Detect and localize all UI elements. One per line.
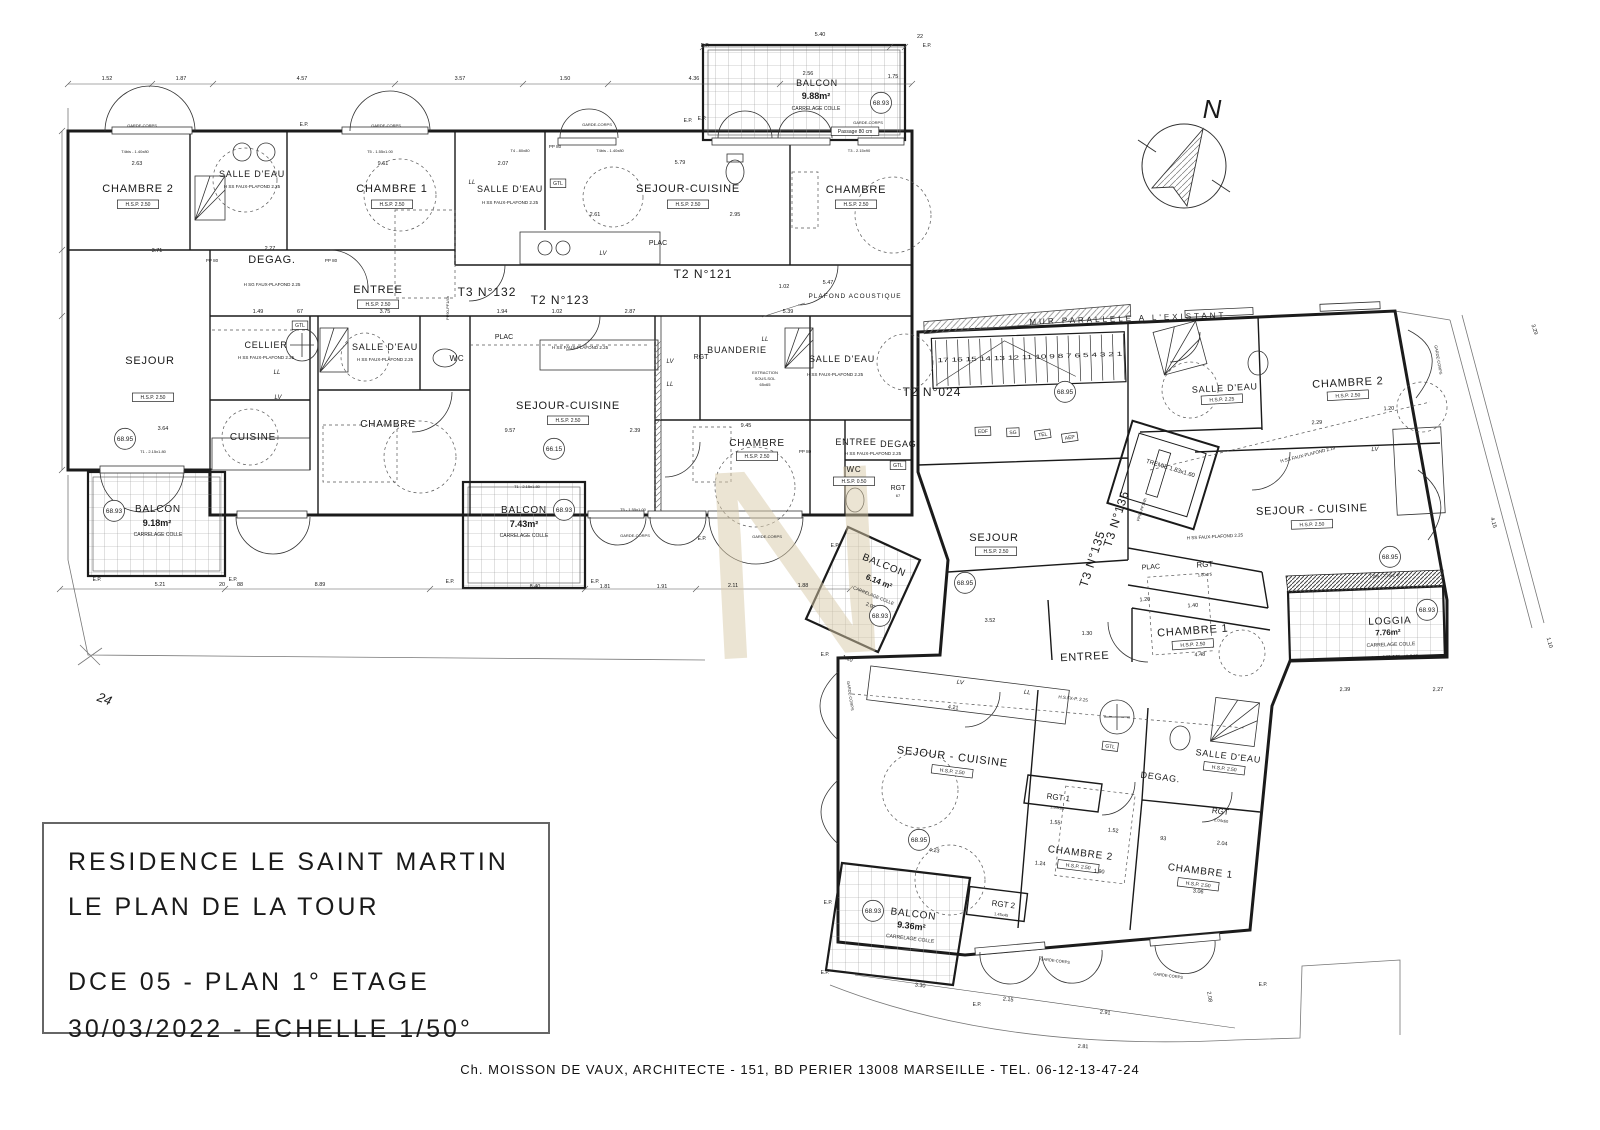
dimension-label: 1.40 — [1187, 603, 1198, 610]
dimension-label: 1.20 — [1139, 597, 1150, 604]
annotation-label: RGT — [891, 485, 907, 492]
annotation-label: LL — [274, 370, 281, 376]
level-marker: 68.95 — [115, 428, 136, 449]
room-label: SEJOUR — [125, 355, 174, 367]
annotation-label: PP 80 — [799, 449, 812, 454]
annotation-label-text: GARDE-CORPS — [853, 120, 883, 125]
boxed-label: H.S.P. 2.50 — [371, 200, 412, 209]
annotation-label: LV — [274, 395, 282, 401]
dimension-label: 3.29 — [1529, 324, 1538, 336]
annotation-label-text: T1 - 2.15x1.80 — [140, 449, 167, 454]
dimension-label: 3.52 — [985, 618, 996, 624]
room-label-text: SEJOUR — [969, 532, 1018, 544]
level-marker: 68.93 — [104, 500, 125, 521]
apartment-label: T2 N°024 — [903, 385, 962, 399]
dimension-label: 67 — [297, 309, 303, 315]
annotation-label-text: GARDE-CORPS — [620, 533, 650, 538]
room-label-text: CHAMBRE — [826, 184, 887, 196]
dimension-label-text: 1.30 — [1082, 631, 1093, 637]
room-label: SEJOUR-CUISINE — [516, 400, 620, 412]
annotation-label: EXTRACTION — [752, 370, 778, 375]
dimension-label-text: 67 — [297, 309, 303, 315]
annotation-label: E.P. — [821, 652, 830, 658]
dimension-label-text: 22 — [917, 34, 923, 40]
annotation-label-text: E.P. — [831, 543, 840, 549]
annotation-label-text: LL — [667, 382, 674, 388]
boxed-label: H.S.P. 2.50 — [1327, 390, 1369, 401]
room-label: BALCON — [796, 78, 838, 88]
room-label-text: ENTREE — [353, 284, 402, 296]
north-compass: N — [1138, 94, 1230, 208]
boxed-label: H.S.P. 2.50 — [667, 200, 708, 209]
annotation-label-text: GARDE-CORPS — [127, 123, 157, 128]
dimension-label: 9.45 — [741, 423, 752, 429]
room-label: CHAMBRE 2 — [102, 183, 173, 195]
level-marker: 68.93 — [871, 92, 892, 113]
north-label: N — [1203, 94, 1222, 124]
dimension-label-text: 3.57 — [455, 76, 466, 82]
boxed-label: H.S.P. 2.50 — [736, 452, 777, 461]
dimension-label: 2.87 — [625, 309, 636, 315]
annotation-label: E.P. — [684, 118, 693, 124]
level-marker-text: 68.95 — [957, 580, 974, 587]
dimension-label: 2.91 — [1099, 1009, 1110, 1016]
apartment-label: T2 N°123 — [531, 293, 590, 307]
room-label: CHAMBRE — [360, 419, 416, 430]
boxed-label: TEL — [1034, 429, 1051, 440]
apartment-label: T2 N°121 — [674, 267, 733, 281]
annotation-label-text: GARDE-CORPS — [752, 534, 782, 539]
annotation-label-text: PP 80 — [549, 144, 562, 149]
boxed-label: GTL — [292, 321, 308, 330]
dimension-label-text: 2.15 — [1002, 996, 1013, 1003]
annotation-label: 7.43m² — [510, 519, 539, 529]
boxed-label: GTL — [1102, 741, 1119, 751]
dimension-label: 3.71 — [152, 248, 163, 254]
boxed-label: H.S.P. 2.50 — [547, 416, 588, 425]
dimension-label-text: 2.81 — [1078, 1044, 1089, 1051]
annotation-label: H SS FAUX-PLAFOND 2.25 — [357, 357, 414, 362]
dimension-label-text: 1.50 — [560, 76, 571, 82]
room-label: CUISINE — [230, 432, 276, 443]
annotation-label: 9.88m² — [802, 91, 831, 101]
boxed-label-text: GTL — [553, 181, 563, 187]
room-label: WC — [847, 465, 862, 474]
annotation-label-text: CARRELAGE COLLE — [134, 532, 183, 538]
dimension-label-text: 3.30 — [914, 982, 925, 989]
dimension-label: 8.40 — [530, 584, 541, 590]
boxed-label-text: H.S.P. 2.50 — [141, 395, 166, 401]
dimension-label-text: 4.36 — [689, 76, 700, 82]
annotation-label-text: PP 80 — [206, 258, 219, 263]
dimension-label-text: 1.20 — [1139, 597, 1150, 604]
dimension-label: 5.79 — [675, 160, 686, 166]
apartment-label-text: T3 N°132 — [458, 285, 517, 299]
annotation-label-text: RGT — [1196, 559, 1214, 569]
annotation-label-text: H SS FAUX-PLAFOND 2.25 — [552, 345, 609, 350]
apartment-label-text: T2 N°121 — [674, 267, 733, 281]
level-marker-text: 68.93 — [872, 613, 889, 620]
annotation-label-text: 9.18m² — [143, 518, 172, 528]
annotation-label: H SS FAUX-PLAFOND 2.25 — [845, 451, 902, 456]
dimension-label-text: 1.02 — [552, 309, 563, 315]
dimension-label-text: 1.87 — [176, 76, 187, 82]
annotation-label-text: LL — [1023, 690, 1030, 697]
annotation-label-text: 7.76m² — [1375, 628, 1401, 638]
annotation-label-text: H SS FAUX-PLAFOND 2.25 — [224, 184, 281, 189]
level-marker: 68.93 — [863, 900, 884, 921]
annotation-label-text: 7.43m² — [510, 519, 539, 529]
dimension-label: 20 — [219, 582, 225, 588]
boxed-label: H.S.P. 2.50 — [117, 200, 158, 209]
room-label-text: CHAMBRE 2 — [102, 183, 173, 195]
room-label-text: SEJOUR-CUISINE — [516, 400, 620, 412]
dimension-label: 1.52 — [102, 76, 113, 82]
annotation-label-text: T4 - 80x80 — [510, 148, 530, 153]
dimension-label: 2.27 — [265, 246, 276, 252]
annotation-label: RGT — [1196, 559, 1214, 569]
level-marker: 68.95 — [1055, 381, 1076, 402]
boxed-label-text: H.S.P. 2.50 — [745, 454, 770, 460]
annotation-label-text: H SS FAUX-PLAFOND 2.25 — [238, 355, 295, 360]
annotation-label-text: T5 - 1.55x1.00 — [620, 507, 647, 512]
dimension-label: 1.50 — [560, 76, 571, 82]
floor-plan-canvas: N N T3 N°132T2 N°123T2 N°121T2 N°024T3 N… — [0, 0, 1600, 1130]
title-block: RESIDENCE LE SAINT MARTIN LE PLAN DE LA … — [42, 822, 550, 1034]
project-name: RESIDENCE LE SAINT MARTIN — [68, 848, 548, 877]
annotation-label: E.P. — [831, 543, 840, 549]
dimension-label-text: 1.52 — [102, 76, 113, 82]
dimension-label-text: 1.49 — [253, 309, 264, 315]
dimension-label: 4.36 — [689, 76, 700, 82]
dimension-label-text: 2.27 — [1433, 687, 1444, 693]
dimension-label: 1.94 — [497, 309, 508, 315]
annotation-label: E.P. — [591, 579, 600, 585]
room-label: BALCON — [501, 505, 547, 516]
north-arrow-icon — [1152, 129, 1203, 206]
annotation-label: PLAFOND ACOUSTIQUE — [808, 293, 901, 300]
level-marker-text: 68.93 — [865, 908, 882, 915]
annotation-label-text: EXTRACTION — [752, 370, 778, 375]
boxed-label: H.S.P. 2.50 — [132, 393, 173, 402]
annotation-label: H SS FAUX-PLAFOND 2.25 — [552, 345, 609, 350]
dimension-label: 2.27 — [1433, 687, 1444, 693]
dimension-label-text: 2.56 — [803, 71, 814, 77]
dimension-label-text: 5.39 — [783, 309, 794, 315]
boxed-label: H.S.P. 0.50 — [833, 477, 874, 486]
boxed-label-text: GTL — [893, 463, 903, 469]
dimension-label-text: 93 — [1160, 836, 1167, 843]
dimension-label: 1.91 — [657, 584, 668, 590]
annotation-label-text: 9.88m² — [802, 91, 831, 101]
annotation-label-text: GARDE-CORPS — [1433, 345, 1443, 376]
level-marker: 68.95 — [1380, 546, 1401, 567]
boxed-label-text: H.S.P. 2.50 — [676, 202, 701, 208]
annotation-label-text: RGT — [694, 354, 710, 361]
room-label: SALLE D'EAU — [809, 354, 875, 364]
boxed-label: H.S.P. 2.25 — [1201, 394, 1243, 405]
annotation-label-text: RGT — [891, 485, 907, 492]
annotation-label: E.P. — [701, 43, 710, 49]
level-marker-text: 68.95 — [911, 837, 928, 844]
annotation-label: GARDE-CORPS — [1433, 345, 1443, 376]
annotation-label-text: T1 - 2.15x1.80 — [514, 484, 541, 489]
dimension-label: 5.40 — [815, 32, 826, 38]
annotation-label-text: E.P. — [300, 122, 309, 128]
boxed-label: EDF — [975, 427, 991, 436]
annotation-label-text: LV — [274, 395, 282, 401]
dimension-label: 2.15 — [1002, 996, 1013, 1003]
room-label: LOGGIA — [1368, 615, 1412, 627]
dimension-label-text: 1.88 — [798, 583, 809, 589]
annotation-label-text: PP 80 — [325, 258, 338, 263]
level-marker: 66.15 — [544, 438, 565, 459]
annotation-label-text: E.P. — [684, 118, 693, 124]
room-label: CHAMBRE 1 — [356, 183, 427, 195]
boxed-label-text: H.S.P. 2.50 — [380, 202, 405, 208]
annotation-label-text: 65x65 — [760, 382, 772, 387]
annotation-label-text: T4bis - 1.40x80 — [596, 148, 624, 153]
annotation-label: T4 - 80x80 — [510, 148, 530, 153]
boxed-label-text: H.S.P. 2.50 — [126, 202, 151, 208]
dimension-label-text: 1.10 — [1545, 637, 1554, 649]
annotation-label-text: SOUS-SOL — [755, 376, 776, 381]
annotation-label: SOUS-SOL — [755, 376, 776, 381]
room-label: SALLE D'EAU — [477, 184, 543, 194]
dimension-label: 9.61 — [378, 161, 389, 167]
level-marker-text: 66.15 — [546, 446, 563, 453]
boxed-label: GTL — [550, 179, 566, 188]
dimension-label-text: 5.79 — [675, 160, 686, 166]
boxed-label: H.S.P. 2.50 — [1291, 519, 1332, 529]
boxed-label-text: EDF — [978, 429, 988, 435]
annotation-label-text: LV — [599, 251, 607, 257]
dimension-label-text: 1.40 — [1187, 603, 1198, 610]
annotation-label: LL — [667, 382, 674, 388]
room-label-text: DEGAG. — [248, 254, 296, 266]
annotation-label: GARDE-CORPS — [853, 120, 883, 125]
annotation-label: T5 - 1.55x1.00 — [620, 507, 647, 512]
dimension-label-text: 9.61 — [378, 161, 389, 167]
apartment-label-text: T2 N°123 — [531, 293, 590, 307]
annotation-label: T4bis - 1.40x80 — [121, 149, 149, 154]
dimension-label-text: 3.52 — [985, 618, 996, 624]
annotation-label-text: LV — [666, 359, 674, 365]
room-label: CHAMBRE — [729, 438, 785, 449]
annotation-label-text: E.P. — [923, 43, 932, 49]
annotation-label: 7.76m² — [1375, 628, 1401, 638]
room-label-text: BUANDERIE — [707, 345, 767, 355]
dimension-label-text: 2.27 — [265, 246, 276, 252]
annotation-label: E.P. — [300, 122, 309, 128]
dimension-label-text: 2.91 — [1099, 1009, 1110, 1016]
dimension-label: 5.47 — [823, 280, 834, 286]
annotation-label-text: GARDE-CORPS — [1153, 971, 1183, 980]
dimension-label: 1.88 — [798, 583, 809, 589]
dimension-label: 2.63 — [132, 161, 143, 167]
dimension-label: 22 — [917, 34, 923, 40]
annotation-label: LL — [1023, 690, 1030, 697]
dimension-label-text: 1.81 — [600, 584, 611, 590]
dimension-label: 5.21 — [155, 582, 166, 588]
boxed-label-text: H.S.P. 2.50 — [844, 202, 869, 208]
dimension-label-text: 5.40 — [815, 32, 826, 38]
annotation-label: PLAC — [495, 334, 513, 341]
level-marker-text: 68.95 — [1382, 554, 1399, 561]
boxed-label-text: H.S.P. 2.50 — [984, 549, 1009, 555]
architect-footer: Ch. MOISSON DE VAUX, ARCHITECTE - 151, B… — [0, 1062, 1600, 1077]
boxed-label: H.S.P. 2.50 — [975, 547, 1016, 556]
dimension-label-text: 2.63 — [132, 161, 143, 167]
annotation-label: GARDE-CORPS — [371, 123, 401, 128]
room-label-text: WC — [450, 354, 465, 363]
drawing-reference: DCE 05 - PLAN 1° ETAGE — [68, 968, 548, 997]
dimension-label: 5.39 — [783, 309, 794, 315]
level-marker-text: 68.93 — [556, 507, 573, 514]
dimension-label: 3.75 — [380, 309, 391, 315]
annotation-label: E.P. — [973, 1002, 982, 1008]
level-marker-text: 68.93 — [106, 508, 123, 515]
dimension-label-text: 5.21 — [155, 582, 166, 588]
annotation-label-text: 24 — [94, 689, 114, 708]
boxed-label-text: H.S.P. 2.50 — [556, 418, 581, 424]
dimension-label-text: 9.57 — [505, 428, 516, 434]
dimension-label: 2.39 — [1340, 687, 1351, 693]
dimension-label: 1.10 — [1545, 637, 1554, 649]
annotation-label-text: CARRELAGE COLLE — [500, 533, 549, 539]
dimension-label: 1.02 — [552, 309, 563, 315]
annotation-label: E.P. — [698, 116, 707, 122]
annotation-label: 65x65 — [760, 382, 772, 387]
annotation-label: PP 80 — [325, 258, 338, 263]
annotation-label: GARDE-CORPS — [127, 123, 157, 128]
boxed-label-text: Passage 80 cm — [838, 129, 872, 135]
annotation-label: GARDE-CORPS — [1040, 956, 1070, 965]
dimension-label-text: 3.29 — [1529, 324, 1538, 336]
dimension-label: 4.48 — [1194, 652, 1205, 659]
boxed-label: AEP — [1061, 432, 1078, 443]
annotation-label-text: T5 - 1.55x1.00 — [367, 149, 394, 154]
annotation-label-text: GARDE-CORPS — [371, 123, 401, 128]
dimension-label-text: 2.61 — [590, 212, 601, 218]
annotation-label: LV — [666, 359, 674, 365]
dimension-label-text: 3.75 — [380, 309, 391, 315]
annotation-label-text: PP 80 — [799, 449, 812, 454]
boxed-label: Passage 80 cm — [831, 127, 879, 136]
annotation-label: H SS FAUX-PLAFOND 2.25 — [482, 200, 539, 205]
dimension-label: 1.81 — [600, 584, 611, 590]
dimension-label-text: 1.02 — [779, 284, 790, 290]
room-label-text: SALLE D'EAU — [219, 169, 285, 179]
annotation-label: E.P. — [698, 536, 707, 542]
dimension-label: 1.49 — [253, 309, 264, 315]
loggia — [1288, 586, 1445, 660]
dimension-label: 1.30 — [1082, 631, 1093, 637]
room-label-text: DEGAG. — [880, 439, 920, 449]
annotation-label: CARRELAGE COLLE — [500, 533, 549, 539]
annotation-label-text: H SS FAUX-PLAFOND 2.25 — [482, 200, 539, 205]
annotation-label-text: E.P. — [1259, 982, 1268, 988]
annotation-label: PP 80 — [549, 144, 562, 149]
dimension-label: 1.87 — [176, 76, 187, 82]
dimension-label: 4.57 — [297, 76, 308, 82]
dimension-label: 93 — [1160, 836, 1167, 843]
level-marker: 68.95 — [955, 572, 976, 593]
dimension-label-text: 1.75 — [888, 74, 899, 80]
boxed-label-text: H.S.P. 0.50 — [842, 479, 867, 485]
room-label: CELLIER — [244, 340, 287, 350]
apartment-label: T3 N°132 — [458, 285, 517, 299]
dimension-label-text: 1.94 — [497, 309, 508, 315]
boxed-label: H.S.P. 2.50 — [835, 200, 876, 209]
room-label-text: CUISINE — [230, 432, 276, 443]
annotation-label-text: PP90-PF1/4h — [445, 296, 450, 320]
annotation-label-text: PLAC — [649, 240, 667, 247]
annotation-label: PP90-PF1/4h — [445, 296, 450, 320]
annotation-label: 24 — [94, 689, 114, 708]
annotation-label-text: E.P. — [446, 579, 455, 585]
dimension-label-text: 4.15 — [1489, 517, 1498, 529]
level-marker: 68.93 — [870, 605, 891, 626]
annotation-label-text: H SG FAUX-PLAFOND 2.25 — [244, 282, 301, 287]
dimension-label: 2.39 — [630, 428, 641, 434]
room-label: SEJOUR — [969, 532, 1018, 544]
dimension-label: 1.02 — [779, 284, 790, 290]
dimension-label: 2.81 — [1078, 1044, 1089, 1051]
dimension-label-text: 5.47 — [823, 280, 834, 286]
annotation-label: E.P. — [93, 577, 102, 583]
dimension-label-text: 3.71 — [152, 248, 163, 254]
dimension-label-text: 2.11 — [728, 583, 738, 589]
dimension-label: 2.08 — [1205, 991, 1212, 1002]
annotation-label: H SS FAUX-PLAFOND 2.25 — [224, 184, 281, 189]
room-label: SALLE D'EAU — [352, 342, 418, 352]
room-label-text: SEJOUR-CUISINE — [636, 183, 740, 195]
dimension-label-text: 2.29 — [1311, 420, 1322, 427]
boxed-label-text: SG — [1009, 430, 1017, 436]
annotation-label-text: CARRELAGE COLLE — [792, 106, 841, 112]
annotation-label: E.P. — [923, 43, 932, 49]
annotation-label: T4bis - 1.40x80 — [596, 148, 624, 153]
dimension-label-text: 1.91 — [657, 584, 668, 590]
dimension-label-text: 2.87 — [625, 309, 636, 315]
dimension-label: 8.89 — [315, 582, 326, 588]
room-label-text: CHAMBRE 1 — [356, 183, 427, 195]
room-label-text: SEJOUR — [125, 355, 174, 367]
annotation-label-text: H SS FAUX-PLAFOND 2.25 — [807, 372, 864, 377]
boxed-label: GTL — [890, 461, 906, 470]
annotation-label-text: T3 - 2.15x90 — [848, 148, 871, 153]
dimension-label-text: 2.95 — [730, 212, 741, 218]
dimension-label: 2.29 — [1311, 420, 1322, 427]
annotation-label-text: LL — [762, 337, 769, 343]
annotation-label: PLAC — [1142, 563, 1161, 571]
annotation-label: PP 80 — [206, 258, 219, 263]
room-label: DEGAG. — [248, 254, 296, 266]
dimension-label-text: 4.57 — [297, 76, 308, 82]
dimension-label-text: 2.08 — [1205, 991, 1212, 1002]
annotation-label: E.P. — [1259, 982, 1268, 988]
annotation-label: LL — [762, 337, 769, 343]
boxed-label-text: H.S.P. 2.50 — [366, 302, 391, 308]
level-marker-text: 68.95 — [1057, 389, 1074, 396]
annotation-label-text: H SS FAUX-PLAFOND 2.25 — [845, 451, 902, 456]
annotation-label-text: E.P. — [698, 536, 707, 542]
annotation-label: GARDE-CORPS — [1153, 971, 1183, 980]
room-label-text: WC — [847, 465, 862, 474]
boxed-label-text: H.S.P. 2.50 — [1299, 522, 1324, 529]
room-label-text: SALLE D'EAU — [809, 354, 875, 364]
